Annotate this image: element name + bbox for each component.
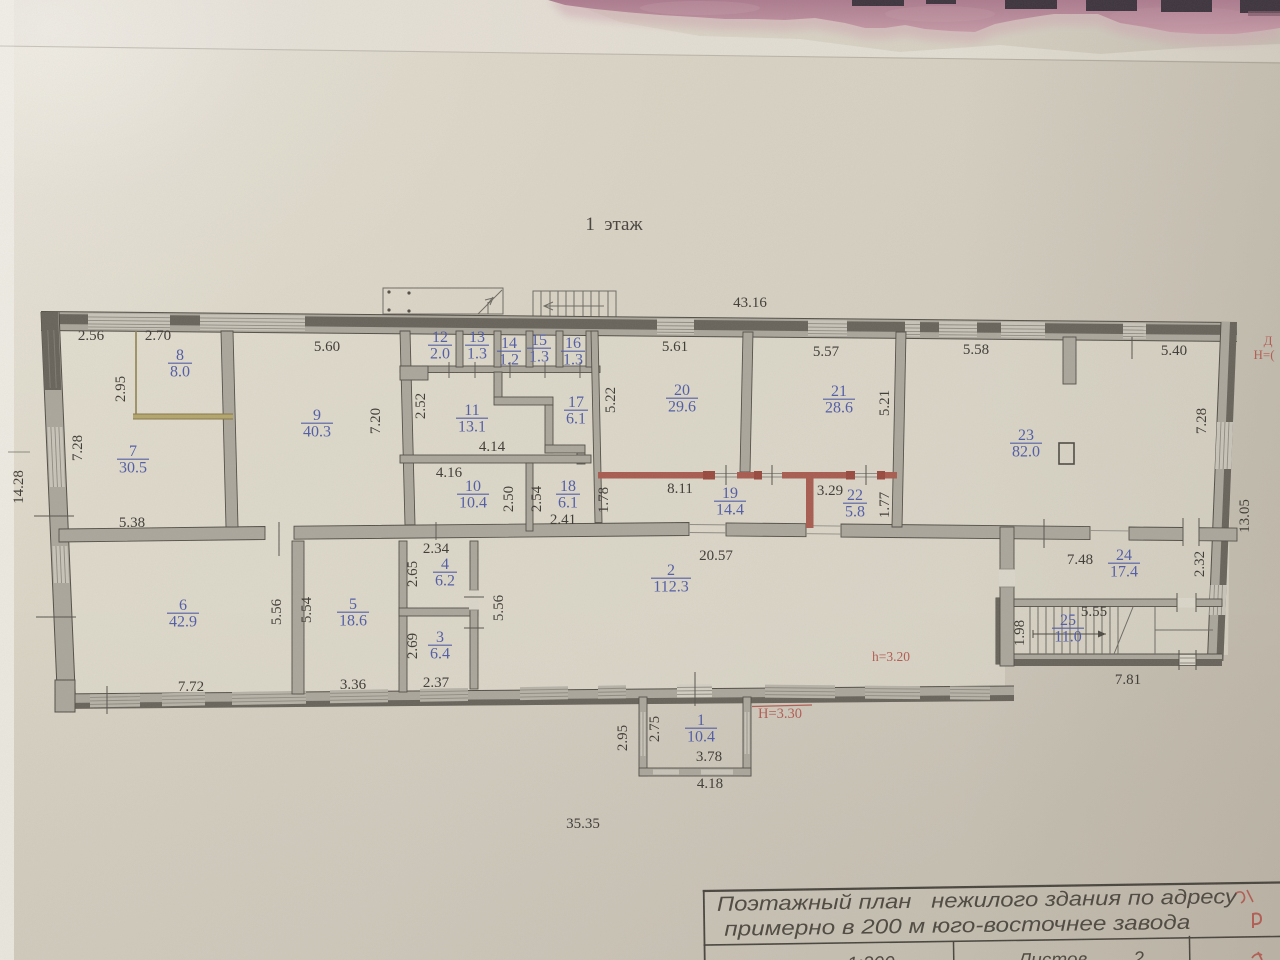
svg-text:2.41: 2.41 (550, 512, 576, 528)
svg-text:6.2: 6.2 (435, 573, 455, 590)
svg-text:2.50: 2.50 (501, 486, 517, 512)
svg-text:35.35: 35.35 (566, 816, 600, 832)
svg-text:Листов: Листов (1016, 949, 1088, 960)
svg-text:1.98: 1.98 (1012, 620, 1028, 646)
svg-text:24: 24 (1116, 547, 1132, 564)
svg-text:1.3: 1.3 (467, 346, 487, 363)
svg-text:40.3: 40.3 (303, 424, 331, 441)
svg-text:2: 2 (1132, 948, 1144, 960)
svg-text:11.0: 11.0 (1054, 629, 1081, 646)
svg-text:5.60: 5.60 (314, 339, 340, 355)
svg-text:h=3.20: h=3.20 (872, 649, 910, 664)
svg-text:30.5: 30.5 (119, 460, 147, 477)
svg-text:2.34: 2.34 (423, 541, 450, 557)
svg-text:12: 12 (432, 329, 448, 346)
svg-text:82.0: 82.0 (1012, 444, 1040, 461)
svg-text:2.52: 2.52 (413, 393, 429, 419)
svg-text:18: 18 (560, 478, 576, 495)
svg-text:16: 16 (565, 335, 581, 352)
svg-text:4.18: 4.18 (697, 776, 723, 792)
svg-text:10.4: 10.4 (459, 495, 487, 512)
svg-text:25: 25 (1060, 612, 1076, 629)
svg-text:3.36: 3.36 (340, 677, 367, 693)
svg-text:2.37: 2.37 (423, 675, 450, 691)
svg-text:7.28: 7.28 (1194, 408, 1210, 434)
svg-text:5.22: 5.22 (603, 387, 619, 413)
svg-text:29.6: 29.6 (668, 399, 696, 416)
svg-text:5.58: 5.58 (963, 342, 989, 358)
svg-text:15: 15 (531, 332, 547, 349)
svg-text:5.8: 5.8 (845, 504, 865, 521)
svg-text:1.77: 1.77 (877, 491, 893, 518)
svg-text:7.28: 7.28 (70, 435, 86, 461)
svg-text:6.1: 6.1 (558, 495, 578, 512)
svg-text:3.78: 3.78 (696, 749, 722, 765)
svg-text:9: 9 (313, 407, 321, 424)
svg-text:21: 21 (831, 383, 847, 400)
svg-text:17.4: 17.4 (1110, 564, 1138, 581)
svg-text:2.95: 2.95 (113, 376, 129, 402)
svg-text:19: 19 (722, 485, 738, 502)
svg-text:2.95: 2.95 (615, 725, 631, 751)
svg-text:18.6: 18.6 (339, 613, 367, 630)
svg-text:5.57: 5.57 (813, 344, 840, 360)
svg-text:14: 14 (501, 335, 517, 352)
svg-text:5.56: 5.56 (491, 594, 507, 621)
svg-text:10.4: 10.4 (687, 729, 715, 746)
svg-text:8.0: 8.0 (170, 364, 190, 381)
svg-text:2.65: 2.65 (405, 561, 421, 587)
svg-text:2.0: 2.0 (430, 346, 450, 363)
svg-text:4.14: 4.14 (479, 439, 506, 455)
svg-text:2.69: 2.69 (405, 633, 421, 659)
svg-text:112.3: 112.3 (653, 579, 688, 596)
svg-text:23: 23 (1018, 427, 1034, 444)
svg-text:11: 11 (464, 402, 479, 419)
svg-text:2.75: 2.75 (647, 716, 663, 742)
svg-text:2.56: 2.56 (78, 328, 105, 344)
svg-text:14.28: 14.28 (11, 470, 27, 504)
svg-text:4: 4 (441, 556, 449, 573)
svg-text:5.55: 5.55 (1081, 604, 1107, 620)
svg-text:Д: Д (1264, 333, 1273, 348)
svg-text:2.70: 2.70 (145, 328, 171, 344)
svg-text:5.38: 5.38 (119, 515, 145, 531)
svg-text:2.32: 2.32 (1192, 551, 1208, 577)
svg-text:7: 7 (129, 443, 137, 460)
svg-text:13: 13 (469, 329, 485, 346)
svg-text:1.3: 1.3 (563, 352, 583, 369)
svg-text:22: 22 (847, 487, 863, 504)
svg-text:1: 1 (697, 712, 705, 729)
svg-text:6.1: 6.1 (566, 411, 586, 428)
svg-text:10: 10 (465, 478, 481, 495)
svg-text:6.4: 6.4 (430, 646, 450, 663)
svg-text:1:200: 1:200 (847, 953, 895, 960)
svg-text:5.54: 5.54 (299, 596, 315, 623)
svg-text:4.16: 4.16 (436, 465, 463, 481)
svg-text:8: 8 (176, 347, 184, 364)
svg-text:6: 6 (179, 597, 187, 614)
svg-text:7.72: 7.72 (178, 679, 204, 695)
svg-text:1 этаж: 1 этаж (585, 214, 643, 235)
svg-text:7.48: 7.48 (1067, 552, 1093, 568)
svg-text:3: 3 (436, 629, 444, 646)
svg-text:Н=(: Н=( (1253, 347, 1274, 362)
svg-text:13.1: 13.1 (458, 419, 486, 436)
svg-text:Н=3.30: Н=3.30 (758, 706, 802, 722)
svg-text:5.56: 5.56 (269, 598, 285, 625)
svg-text:20.57: 20.57 (699, 548, 733, 564)
svg-text:14.4: 14.4 (716, 502, 744, 519)
svg-text:17: 17 (568, 394, 584, 411)
svg-text:28.6: 28.6 (825, 400, 853, 417)
svg-text:42.9: 42.9 (169, 614, 197, 631)
svg-text:7.20: 7.20 (368, 408, 384, 434)
svg-text:1.2: 1.2 (499, 352, 519, 369)
svg-text:3.29: 3.29 (817, 483, 843, 499)
svg-text:5.40: 5.40 (1161, 343, 1187, 359)
svg-text:5.21: 5.21 (877, 390, 893, 416)
svg-text:1.3: 1.3 (529, 349, 549, 366)
svg-text:1.78: 1.78 (596, 487, 612, 513)
svg-text:7.81: 7.81 (1115, 672, 1141, 688)
svg-text:5.61: 5.61 (662, 339, 688, 355)
svg-text:2: 2 (667, 562, 675, 579)
svg-text:20: 20 (674, 382, 690, 399)
svg-text:5: 5 (349, 596, 357, 613)
svg-text:8.11: 8.11 (667, 481, 693, 497)
svg-text:43.16: 43.16 (733, 295, 767, 311)
svg-text:13.05: 13.05 (1237, 499, 1253, 533)
svg-text:2.54: 2.54 (529, 485, 545, 512)
